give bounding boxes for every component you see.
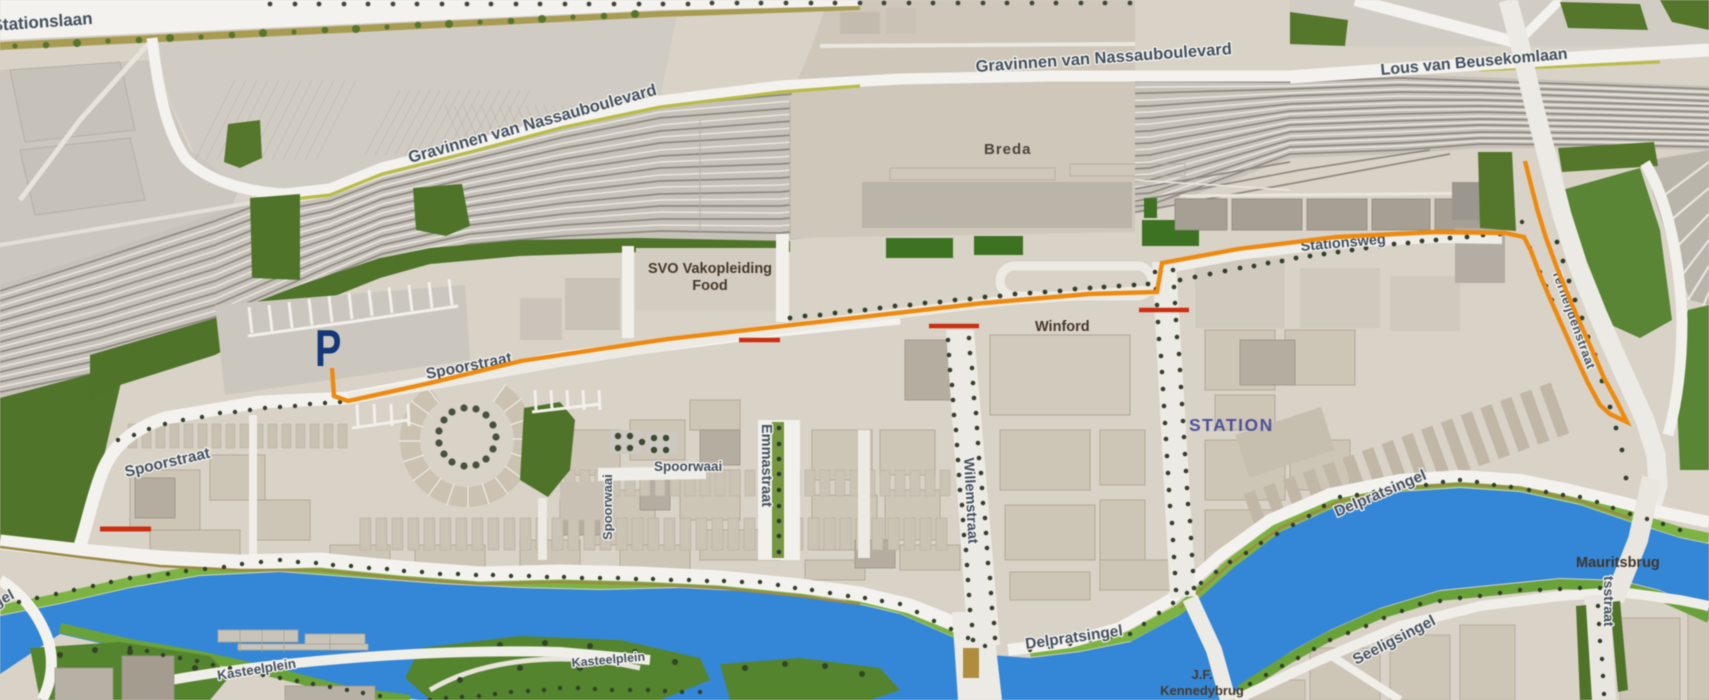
svg-text:Spoorwaai: Spoorwaai — [600, 474, 615, 540]
svg-text:Emmastraat: Emmastraat — [758, 424, 774, 507]
svg-text:Mauritsbrug: Mauritsbrug — [1576, 555, 1660, 571]
svg-text:STATION: STATION — [1189, 415, 1274, 435]
svg-text:Spoorwaai: Spoorwaai — [654, 459, 722, 474]
svg-text:Breda: Breda — [984, 141, 1032, 158]
svg-text:tsstraat: tsstraat — [1601, 576, 1617, 627]
svg-text:J.F.: J.F. — [1192, 667, 1213, 682]
svg-text:Food: Food — [692, 278, 727, 294]
svg-text:SVO Vakopleiding: SVO Vakopleiding — [648, 261, 772, 277]
svg-text:P: P — [315, 319, 341, 378]
svg-text:Winford: Winford — [1035, 319, 1090, 335]
svg-text:Kennedybrug: Kennedybrug — [1160, 683, 1244, 698]
